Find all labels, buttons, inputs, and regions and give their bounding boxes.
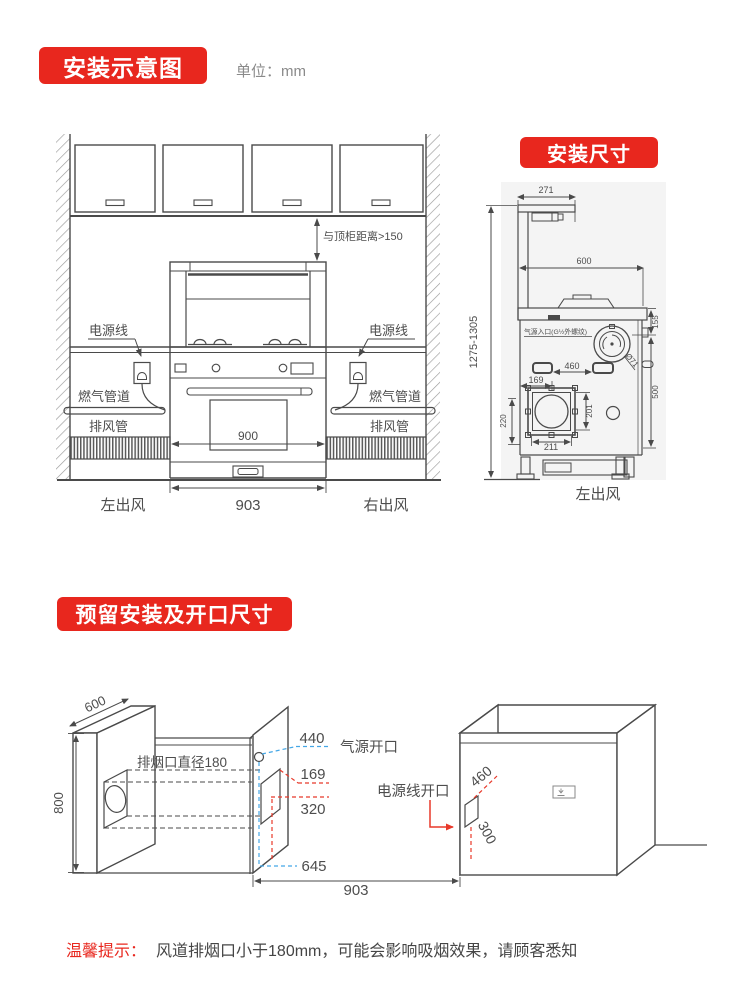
power-opening-label: 电源线开口 [377,783,450,800]
unit-label: 单位：mm [236,60,306,81]
warm-tip: 温馨提示：风道排烟口小于180mm，可能会影响吸烟效果，请顾客悉知 [66,937,577,961]
gas-pipe-left [64,408,165,415]
gap-dimension-label: 与顶柜距离>150 [323,229,403,243]
wire-left [142,384,165,410]
knob-right [279,364,287,372]
dim-201: 201 [585,404,594,418]
cabinet-gap-dimension: 与顶柜距离>150 [317,219,403,260]
width-903-label: 903 [235,497,260,514]
exhaust-duct-left-label: 排风管 [89,419,128,434]
warm-tip-text: 风道排烟口小于180mm，可能会影响吸烟效果，请顾客悉知 [156,943,577,960]
duct-left-graphic [70,437,170,459]
display-panel [291,363,313,374]
power-cord-left-label: 电源线 [89,323,128,338]
dim-155: 155 [651,315,660,329]
gas-pipe-left-label: 燃气管道 [78,389,130,404]
dim-903: 903 [343,882,368,899]
dim-440: 440 [299,730,324,747]
side-view-diagram: 271 1275-1305 600 气源入口(G½外螺纹) 155 460 16… [465,180,705,510]
opening-diagram: 600 800 排烟口直径180 440 气源开口 169 320 645 电源… [40,690,715,902]
oven-handle [187,388,312,395]
dim-211: 211 [544,442,558,452]
air-outlet-right-label: 右出风 [363,497,408,514]
dim-220: 220 [499,414,508,428]
duct-right-graphic [326,437,426,459]
gas-inlet-label: 气源入口(G½外螺纹) [524,327,587,336]
knob-left [212,364,220,372]
air-outlet-left-label: 左出风 [100,497,145,514]
warm-tip-prefix: 温馨提示： [66,943,146,960]
top-cabinets [75,145,423,212]
width-900-label: 900 [238,429,258,443]
dim-169: 169 [528,375,543,385]
page: 安装示意图 单位：mm [0,0,750,989]
power-sockets [134,363,366,411]
panel-switch [175,364,186,372]
gas-pipe-right-label: 燃气管道 [369,389,421,404]
power-cord-right-label: 电源线 [369,323,408,338]
banner-opening-size-label: 预留安装及开口尺寸 [76,599,274,629]
banner-install-size-label: 安装尺寸 [547,138,631,167]
dim-depth-600: 600 [82,693,108,716]
wire-right [335,384,358,410]
dim-600: 600 [576,256,591,266]
power-opening-arrow [430,800,453,827]
dim-169: 169 [300,766,325,783]
dim-total-height: 1275-1305 [468,316,480,369]
gas-opening-label: 气源开口 [340,739,398,756]
gas-pipe-right [331,408,435,415]
dim-271: 271 [538,185,553,195]
banner-installation-diagram: 安装示意图 [39,47,207,84]
front-view-diagram: 与顶柜距离>150 [55,130,460,520]
banner-install-size: 安装尺寸 [520,137,658,168]
exhaust-duct-right-label: 排风管 [370,419,409,434]
banner-installation-diagram-label: 安装示意图 [63,49,183,83]
burners [188,340,307,345]
gas-pipes [64,408,435,415]
dim-320: 320 [300,801,325,818]
dim-500: 500 [651,385,660,399]
dim-460: 460 [564,361,579,371]
dim-645: 645 [301,858,326,875]
banner-opening-size: 预留安装及开口尺寸 [57,597,292,631]
dim-height-800: 800 [51,792,66,814]
side-air-outlet-label: 左出风 [575,486,620,503]
smoke-outlet-label: 排烟口直径180 [137,755,227,770]
